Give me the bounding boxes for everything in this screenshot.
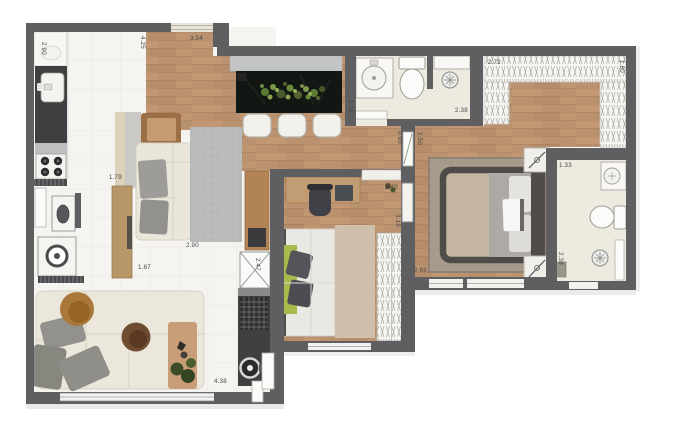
svg-text:3.54: 3.54 — [190, 35, 203, 42]
svg-text:4.38: 4.38 — [214, 378, 227, 385]
svg-text:2.72: 2.72 — [488, 59, 501, 66]
svg-text:1.18: 1.18 — [347, 100, 354, 113]
svg-text:1.50: 1.50 — [416, 132, 423, 145]
svg-text:2.65: 2.65 — [414, 267, 427, 274]
svg-text:0.90: 0.90 — [396, 131, 403, 144]
svg-text:1.33: 1.33 — [559, 162, 572, 169]
svg-text:2.38: 2.38 — [557, 252, 564, 265]
svg-text:2.47: 2.47 — [254, 258, 261, 271]
svg-text:2.90: 2.90 — [40, 42, 47, 55]
svg-text:3.16: 3.16 — [394, 214, 401, 227]
svg-text:1.79: 1.79 — [109, 174, 122, 181]
svg-text:2.90: 2.90 — [186, 242, 199, 249]
svg-text:1.87: 1.87 — [138, 264, 151, 271]
svg-text:2.38: 2.38 — [455, 107, 468, 114]
svg-text:1.80: 1.80 — [618, 60, 625, 73]
svg-text:2.40: 2.40 — [385, 184, 398, 191]
svg-text:4.25: 4.25 — [139, 36, 146, 49]
